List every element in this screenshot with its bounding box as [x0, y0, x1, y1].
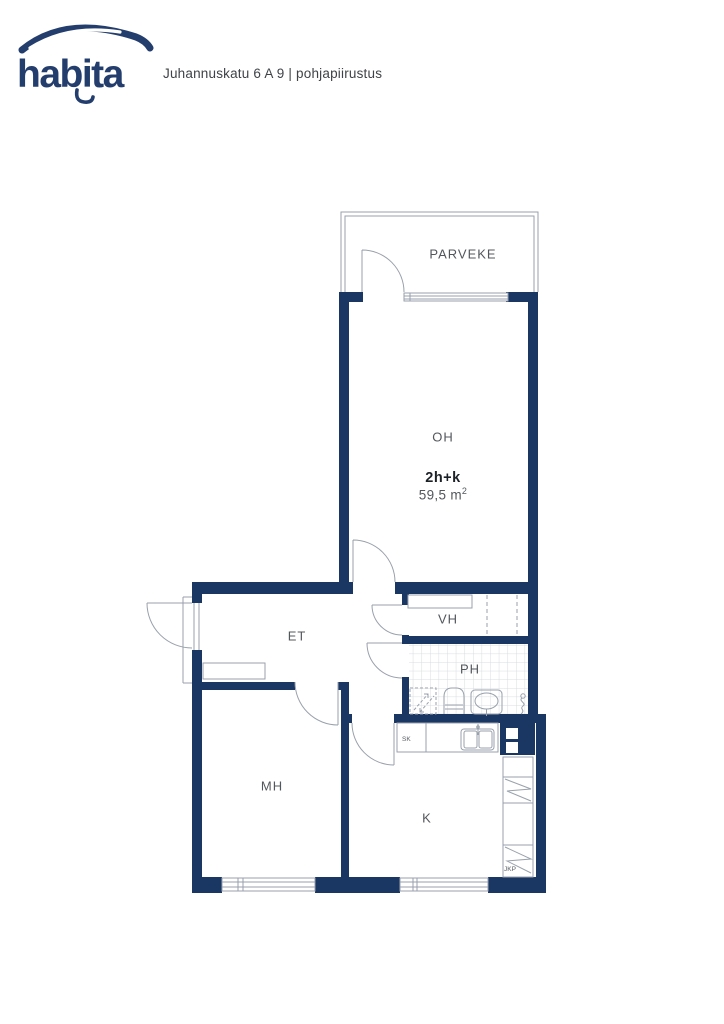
closet-door-swing [372, 605, 402, 635]
apartment-area-label: 59,5 m2 [419, 486, 467, 503]
closet-fixtures [408, 595, 517, 636]
area-superscript: 2 [462, 486, 467, 496]
room-label-et: ET [288, 629, 307, 644]
entry-door-swing [147, 597, 199, 683]
bedroom-window [222, 878, 315, 891]
floorplan-page: habita Juhannuskatu 6 A 9 | pohjapiirust… [0, 0, 724, 1024]
apartment-type-label: 2h+k [425, 470, 460, 486]
kitchen-door-swing [352, 723, 394, 765]
balcony-door-swing [362, 250, 404, 292]
kitchen-window [400, 878, 488, 891]
bath-door-swing [367, 643, 402, 678]
room-label-mh: MH [261, 779, 283, 794]
balcony-window [404, 293, 508, 301]
room-label-parveke: PARVEKE [429, 247, 496, 262]
area-value: 59,5 m [419, 487, 462, 502]
room-label-vh: VH [438, 612, 458, 627]
walls [192, 292, 546, 893]
room-label-oh: OH [432, 430, 454, 445]
bedroom-door-swing [295, 682, 338, 725]
fixture-label-jkp: JKP [504, 866, 516, 873]
room-label-ph: PH [460, 662, 480, 677]
room-label-k: K [422, 811, 432, 826]
floorplan-drawing [0, 0, 724, 1024]
living-room-door-swing [353, 540, 395, 582]
entry-closet [203, 663, 265, 679]
fixture-label-sk: SK [402, 736, 411, 743]
